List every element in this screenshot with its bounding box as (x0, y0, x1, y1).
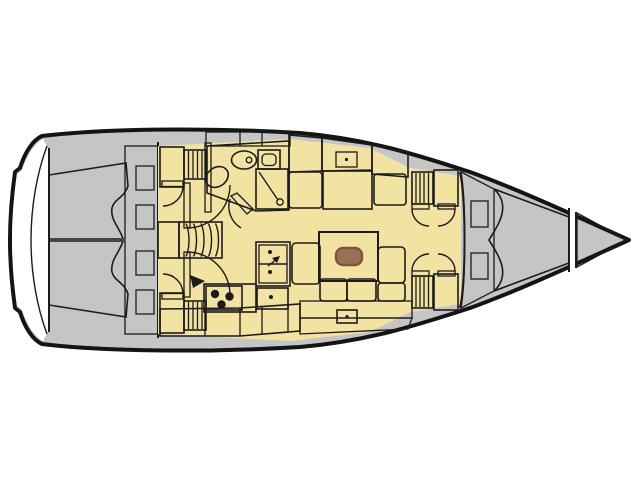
forepeak-bulkhead-gap (569, 208, 576, 272)
sink-drain-dot (268, 270, 272, 274)
fridge-dot (269, 295, 273, 299)
sideboard-handle-dot (346, 315, 349, 318)
floorplan-canvas (0, 0, 640, 480)
table-handle (336, 248, 362, 265)
panel-handle-dot (345, 158, 348, 161)
burner-dot (225, 292, 233, 300)
yacht-floorplan (0, 0, 640, 480)
burner-dot (211, 290, 219, 298)
sink-drain-dot (268, 250, 272, 254)
